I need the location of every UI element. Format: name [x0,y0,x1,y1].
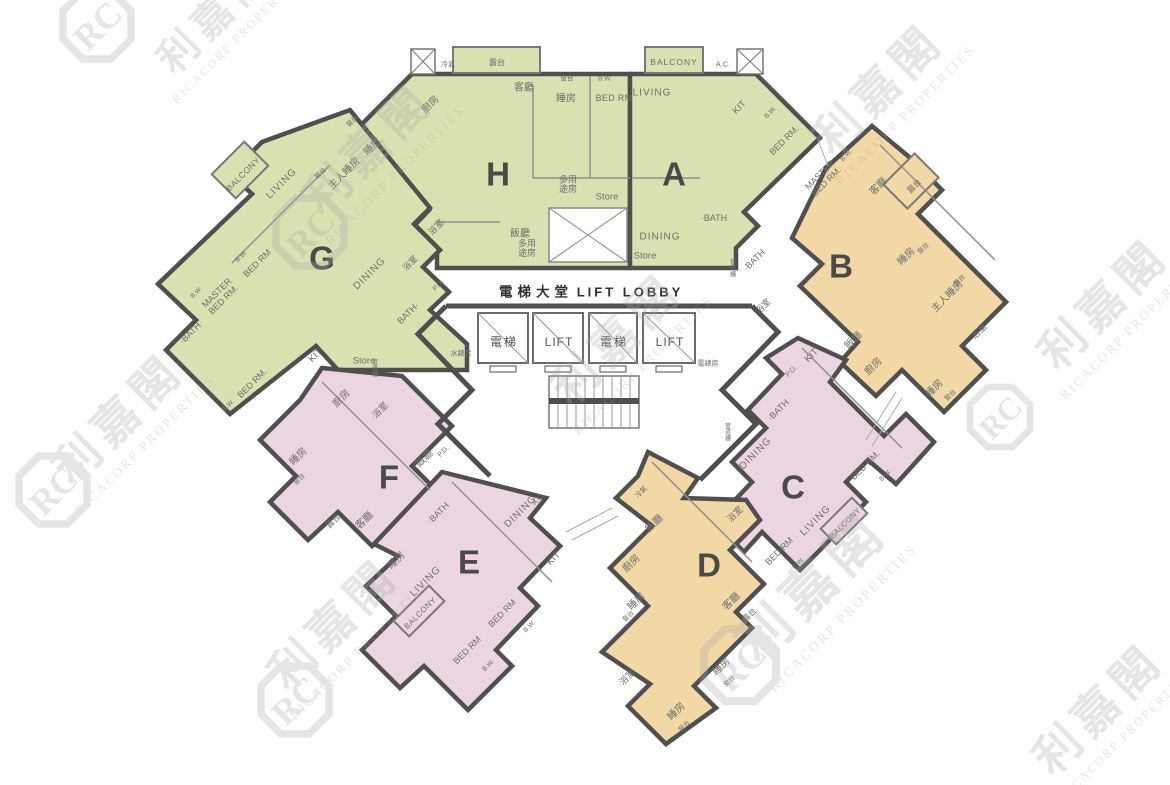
plan-label: DINING [640,232,681,243]
plan-label: Store [634,250,657,261]
plan-label: ·BATH [741,247,767,273]
plan-label: 睡房 [556,92,576,105]
plan-label: 冷氣 [441,59,455,68]
plan-label: H [486,156,510,193]
ricacorp-logo-watermark: RC [49,0,145,73]
plan-label: 多用途房 [559,173,577,193]
floor-plan-page: 電梯大堂LIFT LOBBY電梯LIFT電梯LIFT水錶房電錶房HAGBFECD… [0,0,1170,785]
plan-label: 客廳 [514,81,534,94]
plan-label: 管道槽 [725,422,731,443]
plan-label: F [379,459,399,496]
plan-label: 電梯大堂 [499,284,573,300]
plan-label: 露台 [489,57,505,67]
plan-label: E [458,544,480,581]
plan-label: LIFT [545,335,574,349]
plan-label: P.D. [437,445,451,459]
plan-label: ·BATH [701,213,727,223]
watermark-text: 利嘉閣RICACORP PROPERTIES [136,0,306,106]
plan-label: B.W. [598,75,612,82]
watermark-text: 利嘉閣RICACORP PROPERTIES [1017,627,1170,785]
plan-label: 管道槽 [730,258,736,279]
plan-label: D [697,547,721,584]
plan-label: A [662,156,686,193]
floor-plan-canvas: 電梯大堂LIFT LOBBY電梯LIFT電梯LIFT水錶房電錶房HAGBFECD… [0,0,1170,785]
plan-label: BALCONY [650,57,698,67]
plan-label: LIVING [633,88,672,99]
plan-label: 電錶房 [698,358,719,367]
plan-label: C [781,469,805,506]
plan-label: 窗台 [561,73,574,82]
ac-platform-left [411,49,435,74]
plan-label: 電梯 [490,335,518,349]
plan-label: A.C. [716,60,731,69]
plan-label: Store [596,191,619,202]
plan-label: B [829,248,853,285]
watermark-text: 利嘉閣RICACORP PROPERTIES [1018,218,1170,402]
plan-label: BED RM [596,93,633,103]
plan-label: 多用途房 [518,237,536,257]
plan-label: 浴室 [753,296,772,315]
plan-label: 水錶房 [451,348,472,357]
plan-label: 管道槽 [372,358,378,379]
ac-platform-right [737,49,763,74]
light-well [549,208,627,262]
